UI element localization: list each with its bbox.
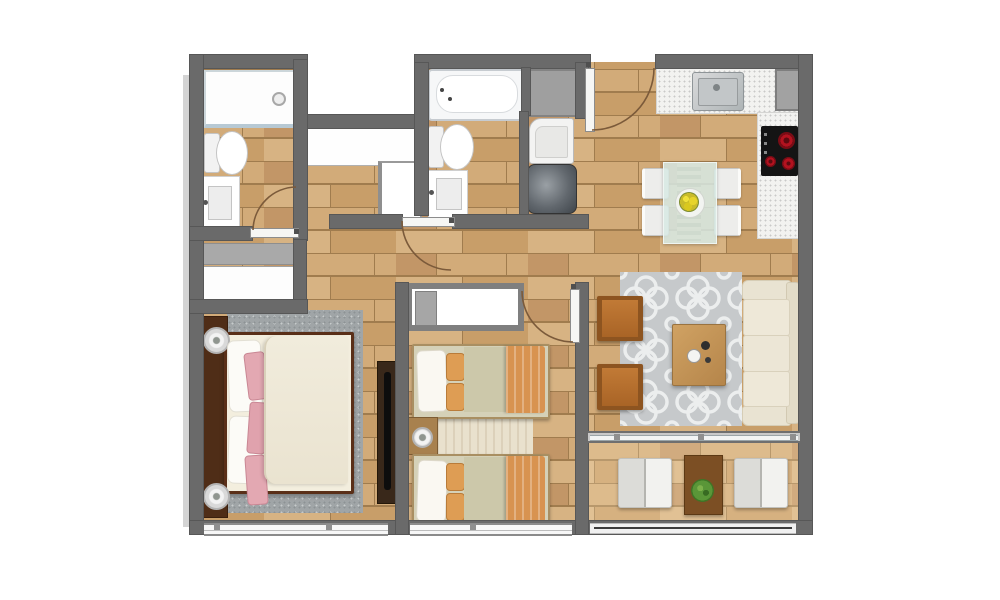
master-bedroom-window — [204, 523, 388, 536]
sofa-arm-top — [742, 280, 791, 300]
wall-bath1-right — [294, 60, 307, 240]
bathroom2-door-hinge — [449, 218, 454, 223]
sofa-arm-bottom — [742, 406, 791, 426]
sliding-door-glass — [590, 435, 798, 441]
entry-door — [585, 68, 595, 132]
twin-bed-2-blanket — [506, 456, 545, 523]
bedside-lamp-1 — [203, 327, 230, 354]
terrace-railing — [590, 523, 796, 534]
table-item-dark-2 — [705, 357, 711, 363]
lounge-chair-1 — [618, 458, 672, 508]
wall-top-1 — [190, 55, 307, 68]
bathtub-drain — [448, 97, 452, 101]
entry-door-hinge — [586, 62, 591, 67]
potted-plant — [691, 479, 714, 502]
basin-1 — [208, 186, 232, 220]
tv — [384, 372, 391, 490]
bedroom2-door — [570, 289, 580, 343]
shower-mat — [529, 69, 577, 117]
wall-bath1-south — [190, 227, 252, 240]
sofa-cushion-2 — [743, 335, 790, 372]
wall-tub-divider — [522, 68, 530, 115]
twin-bed-1-accent-pillow-b — [446, 383, 465, 411]
washing-machine-lid — [535, 126, 568, 158]
duvet — [264, 336, 348, 484]
bedroom2-window — [410, 523, 572, 536]
sofa — [742, 280, 801, 424]
window-handle-3 — [470, 524, 476, 530]
twin-bed-2 — [412, 454, 550, 529]
wall-bedrooms-divider — [396, 283, 408, 534]
shower-drain — [272, 92, 286, 106]
dining-chair-4 — [714, 205, 741, 236]
toilet-bowl-1 — [216, 131, 248, 175]
dining-chair-3 — [714, 168, 741, 199]
wall-top-3 — [656, 55, 812, 68]
sliding-door-handle-1 — [614, 434, 620, 440]
floor-plan — [0, 0, 1000, 600]
armchair-2 — [597, 364, 643, 410]
wall-notch — [300, 115, 418, 128]
exterior-edge — [183, 75, 190, 527]
sliding-door-handle-3 — [790, 434, 796, 440]
sliding-door-handle-2 — [698, 434, 704, 440]
refrigerator — [775, 69, 802, 111]
wall-left — [190, 55, 203, 534]
twin-bed-1-sheet — [464, 347, 508, 412]
kitchen-faucet — [713, 84, 720, 91]
lounge-chair-2 — [734, 458, 788, 508]
kitchen-sink-basin — [698, 78, 738, 106]
water-heater — [527, 164, 577, 214]
burner-large — [778, 132, 795, 149]
wall-bath2-left — [415, 63, 428, 215]
twin-bed-1-accent-pillow-a — [446, 353, 465, 381]
twin-bed-1-pillow — [416, 349, 448, 412]
cooktop-knobs — [764, 133, 767, 159]
bedside-lamp-2 — [203, 483, 230, 510]
runner-rug — [437, 414, 533, 455]
nightstand-lamp — [412, 427, 433, 448]
bathtub-inner — [436, 75, 518, 113]
faucet-2 — [429, 190, 434, 195]
bedroom2-door-hinge — [571, 284, 576, 289]
basin-2 — [436, 178, 462, 210]
wall-corridor-stub — [330, 215, 402, 228]
railing-bar — [594, 527, 792, 529]
exterior-notch — [307, 38, 415, 115]
sofa-cushion-3 — [743, 371, 790, 407]
twin-bed-2-sheet — [464, 457, 508, 522]
faucet-1 — [203, 200, 208, 205]
table-item-dark-1 — [701, 341, 710, 350]
hall-shelf — [203, 243, 299, 265]
window-handle-2 — [326, 524, 332, 530]
wall-bedroom1-top — [190, 300, 307, 313]
wall-laundry-left — [520, 112, 528, 222]
bathtub-faucet — [440, 88, 444, 92]
twin-bed-1 — [412, 344, 550, 419]
wall-laundry-south — [453, 215, 588, 228]
twin-bed-2-accent-pillow-a — [446, 463, 465, 491]
wall-right — [799, 55, 812, 534]
window-handle-1 — [214, 524, 220, 530]
bathroom1-door — [250, 228, 299, 238]
bathroom1-door-hinge — [294, 229, 299, 234]
flower-centerpiece — [679, 192, 699, 212]
wall-top-2 — [415, 55, 590, 68]
wardrobe-panel — [415, 291, 437, 326]
sofa-cushion-1 — [743, 299, 790, 336]
coffee-table — [672, 324, 726, 386]
armchair-2-cushion — [602, 368, 638, 406]
twin-bed-2-accent-pillow-b — [446, 493, 465, 521]
burner-small-2 — [782, 157, 795, 170]
twin-bed-1-blanket — [506, 346, 545, 413]
bathroom2-door — [402, 217, 455, 227]
toilet-bowl-2 — [440, 124, 474, 170]
armchair-1 — [597, 296, 643, 341]
coffee-cup — [687, 349, 701, 363]
twin-bed-2-pillow — [416, 459, 448, 522]
armchair-1-cushion — [602, 300, 638, 337]
